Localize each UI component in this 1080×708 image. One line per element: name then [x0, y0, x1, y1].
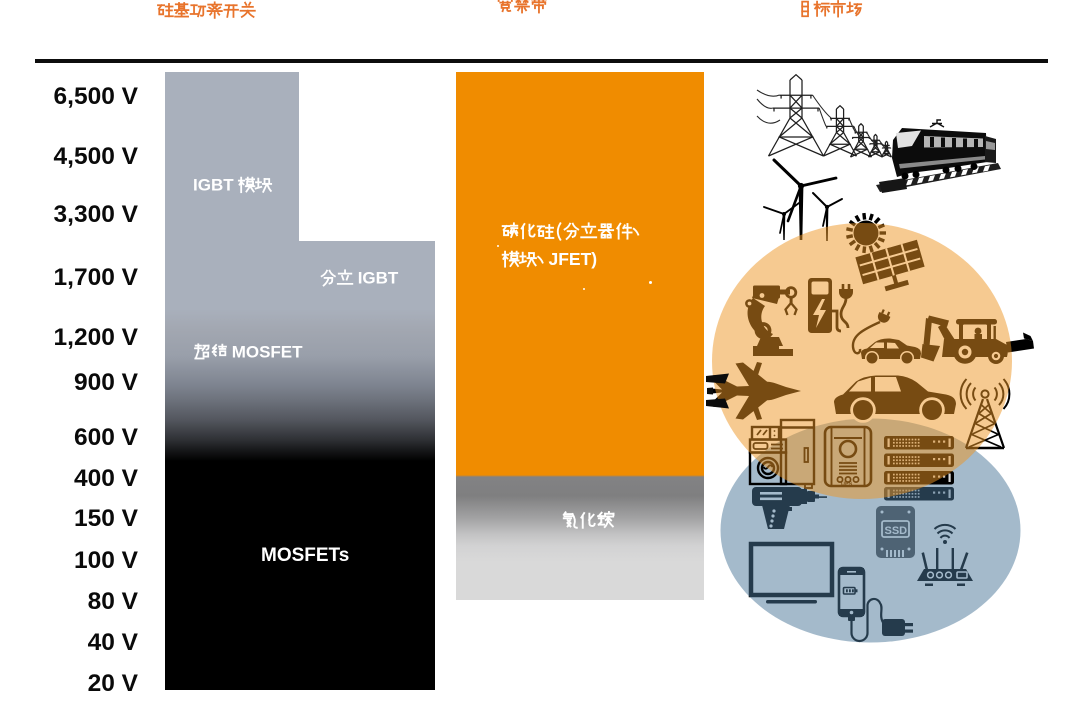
svg-text:MOSFET: MOSFET — [232, 343, 303, 362]
svg-text:IGBT: IGBT — [193, 176, 234, 195]
svg-text:MOSFETs: MOSFETs — [261, 545, 349, 566]
svg-text:IGBT: IGBT — [358, 269, 399, 288]
svg-text:JFET): JFET) — [549, 249, 598, 269]
